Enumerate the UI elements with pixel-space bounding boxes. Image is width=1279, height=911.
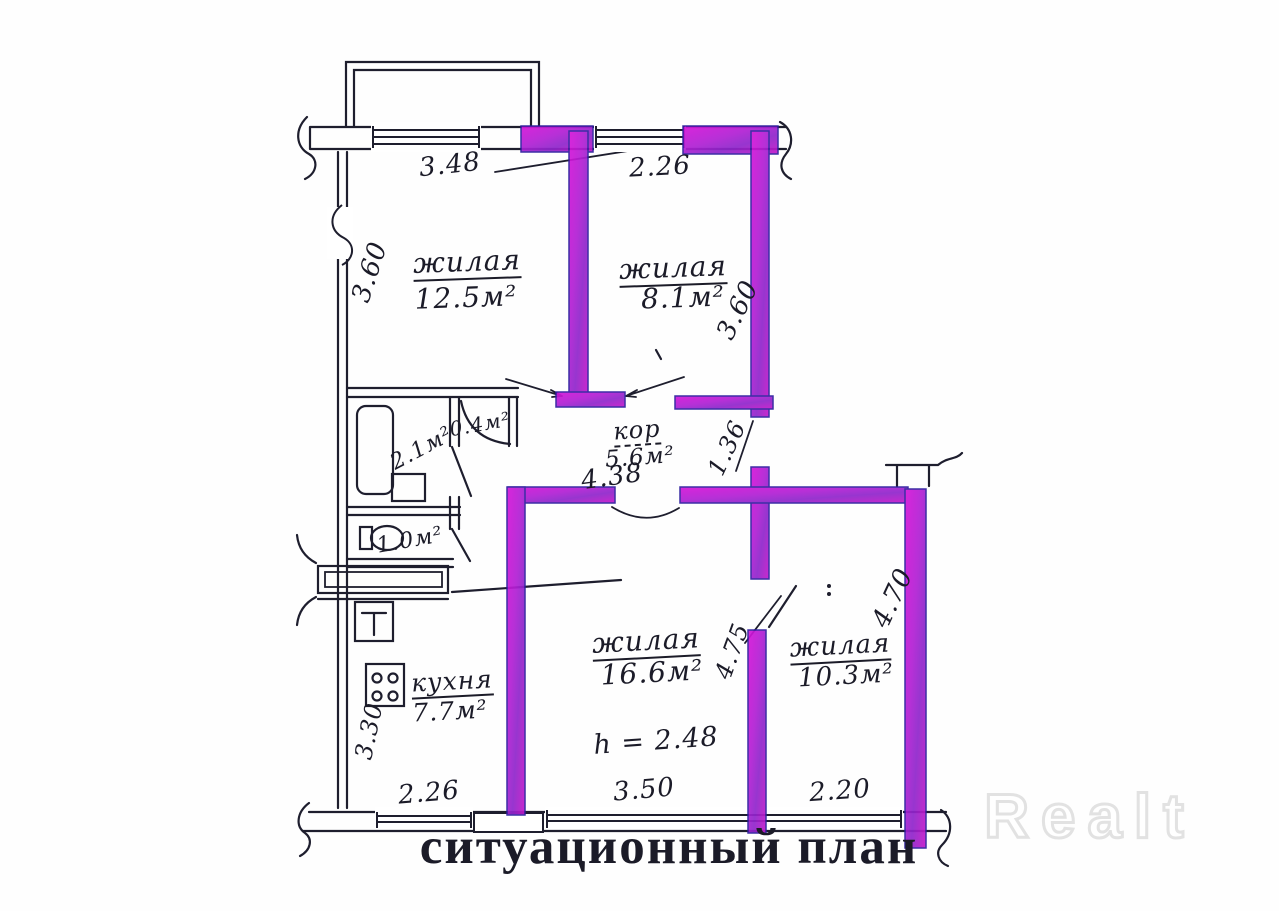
realt-watermark: Realt xyxy=(984,782,1196,853)
living1-name: жилая xyxy=(413,246,522,282)
switch-mark xyxy=(827,584,831,596)
living4-area: 10.3м² xyxy=(797,661,894,692)
dim-kitchen-width: 2.26 xyxy=(397,777,461,808)
plan-caption: ситуационный план xyxy=(420,818,919,876)
dim-living1-width: 3.48 xyxy=(418,149,482,181)
floor-plan-scan: 3.48 2.26 3.60 жилая 12.5м² жилая 8.1м² … xyxy=(0,0,1279,911)
dim-living2-width: 2.26 xyxy=(628,152,691,181)
living1-area: 12.5м² xyxy=(414,282,518,314)
dim-living3-width: 3.50 xyxy=(612,774,676,805)
dim-living4-width: 2.20 xyxy=(808,776,872,806)
kitchen-area: 7.7м² xyxy=(412,697,489,726)
leader-lines xyxy=(495,141,781,643)
living2-area: 8.1м² xyxy=(641,283,726,314)
living3-area: 16.6м² xyxy=(600,656,704,689)
